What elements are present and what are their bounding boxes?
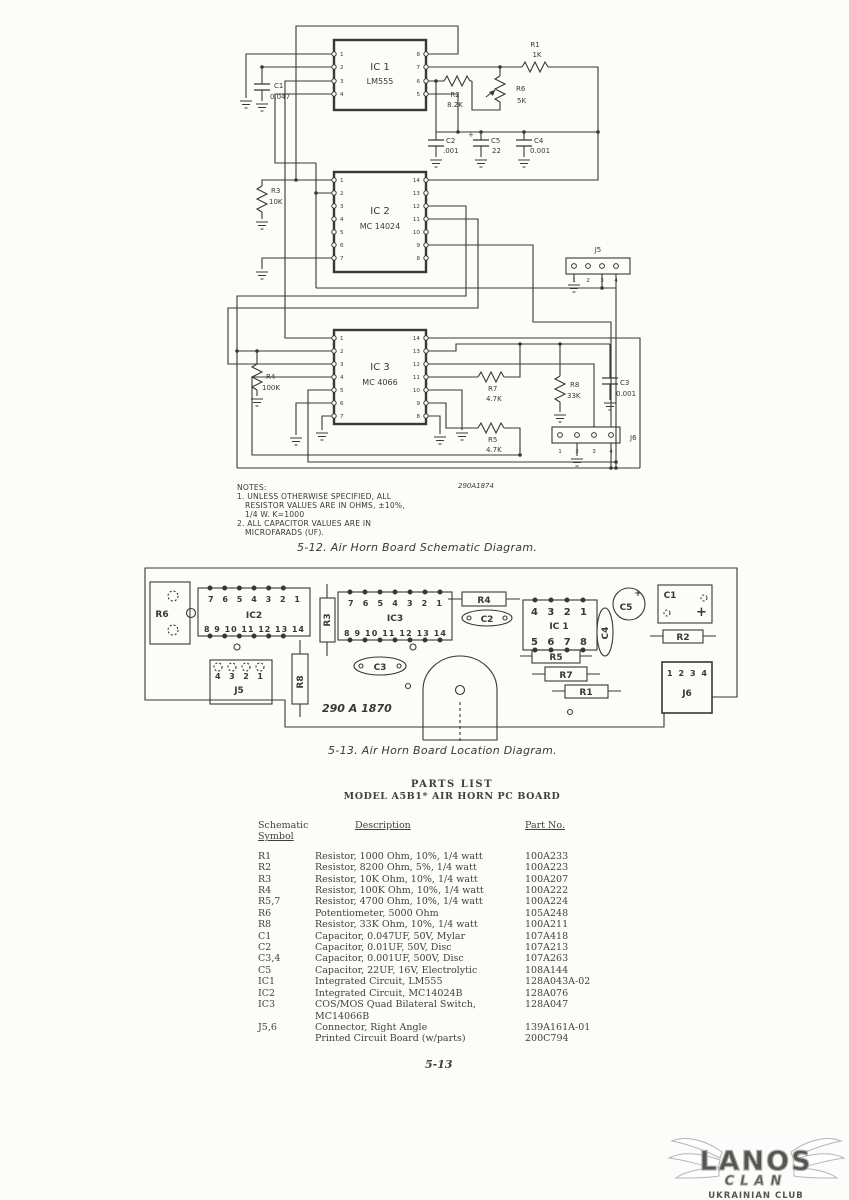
horn-dome xyxy=(423,656,497,744)
r5-value: 4.7K xyxy=(486,446,502,454)
table-row: C3,4Capacitor, 0.001UF, 500V, Disc107A26… xyxy=(258,953,618,964)
board-c2-label: C2 xyxy=(481,615,494,625)
table-row: R8Resistor, 33K Ohm, 10%, 1/4 watt100A21… xyxy=(258,919,618,930)
board-ic3-bottom-pins: 8 9 10 11 12 13 14 xyxy=(344,629,446,638)
header-part-no: Part No. xyxy=(525,820,618,851)
part-no-cell: 128A076 xyxy=(525,988,618,999)
pin-label: 3 xyxy=(340,204,344,210)
board-number: 290 A 1870 xyxy=(322,702,392,715)
board-c3-label: C3 xyxy=(374,663,387,673)
symbol-cell xyxy=(258,1033,315,1044)
c5-label: C5 xyxy=(491,137,500,145)
r1-label: R1 xyxy=(530,41,539,49)
board-c3: C3 xyxy=(354,657,406,675)
pin-label: 4 xyxy=(609,449,613,455)
board-r6-label: R6 xyxy=(155,610,168,620)
c3-value: 0.001 xyxy=(616,390,636,398)
r8-label: R8 xyxy=(570,381,579,389)
symbol-cell: IC3 xyxy=(258,999,315,1022)
r7-value: 4.7K xyxy=(486,395,502,403)
table-row: C5Capacitor, 22UF, 16V, Electrolytic108A… xyxy=(258,965,618,976)
description-cell: Integrated Circuit, MC14024B xyxy=(315,988,525,999)
resistor-r2 xyxy=(444,76,470,86)
symbol-cell: C1 xyxy=(258,931,315,942)
description-cell: Capacitor, 0.047UF, 50V, Mylar xyxy=(315,931,525,942)
part-no-cell: 107A418 xyxy=(525,931,618,942)
description-cell: Connector, Right Angle xyxy=(315,1022,525,1033)
connector-j6: J6 1 2 3 4 xyxy=(552,427,637,455)
table-row: IC1Integrated Circuit, LM555128A043A-02 xyxy=(258,976,618,987)
board-r4: R4 xyxy=(448,592,520,606)
component-labels: R1 1K C1 0.047 R2 8.2K R6 5K C2 .001 + C… xyxy=(262,41,636,490)
board-r5: R5 xyxy=(520,650,592,663)
part-no-cell: 107A213 xyxy=(525,942,618,953)
board-r7: R7 xyxy=(532,667,600,681)
r4-value: 100K xyxy=(262,384,280,392)
pin-label: 10 xyxy=(413,230,421,236)
board-ic1-bottom-pins: 5 6 7 8 xyxy=(531,637,587,648)
pin-label: 6 xyxy=(340,401,344,407)
pin-label: 2 xyxy=(340,191,344,197)
resistor-r5 xyxy=(478,423,504,433)
part-no-cell: 108A144 xyxy=(525,965,618,976)
air-horn-schematic: IC 1 LM555 1 2 3 4 8 7 6 5 IC 2 MC 14024… xyxy=(0,0,849,560)
ic1-part-label: LM555 xyxy=(367,77,394,86)
pin-label: 2 xyxy=(586,278,590,284)
parts-table: Schematic Symbol Description Part No. R1… xyxy=(258,820,618,1045)
board-c2: C2 xyxy=(462,610,512,626)
r6-value: 5K xyxy=(517,97,526,105)
c5-value: 22 xyxy=(492,147,501,155)
board-c1: C1 + xyxy=(658,585,712,623)
description-cell: Resistor, 33K Ohm, 10%, 1/4 watt xyxy=(315,919,525,930)
board-c1-label: C1 xyxy=(664,591,677,601)
board-c5: C5 + xyxy=(613,588,645,620)
board-r2: R2 xyxy=(650,630,716,643)
description-cell: Capacitor, 0.001UF, 500V, Disc xyxy=(315,953,525,964)
part-no-cell: 107A263 xyxy=(525,953,618,964)
pin-label: 8 xyxy=(416,256,420,262)
board-r5-label: R5 xyxy=(549,653,562,663)
symbol-cell: C3,4 xyxy=(258,953,315,964)
pin-label: 1 xyxy=(340,178,344,184)
description-cell: Resistor, 8200 Ohm, 5%, 1/4 watt xyxy=(315,862,525,873)
board-c5-polarity: + xyxy=(634,589,642,599)
board-j6-label: J6 xyxy=(681,689,692,699)
symbol-cell: R8 xyxy=(258,919,315,930)
watermark-subtitle: CLAN xyxy=(725,1174,788,1189)
part-no-cell: 128A043A-02 xyxy=(525,976,618,987)
pin-label: 11 xyxy=(413,217,421,223)
r5-label: R5 xyxy=(488,436,497,444)
pin-label: 4 xyxy=(614,278,618,284)
r3-label: R3 xyxy=(271,187,280,195)
board-r8: R8 xyxy=(292,640,308,717)
board-r1: R1 xyxy=(552,685,621,698)
ic2-symbol: IC 2 MC 14024 1 2 3 4 5 6 7 14 13 12 11 … xyxy=(332,172,428,272)
board-j6: 1 2 3 4 J6 xyxy=(662,662,712,713)
part-no-cell: 200C794 xyxy=(525,1033,618,1044)
note-line: 1. UNLESS OTHERWISE SPECIFIED, ALL xyxy=(237,492,392,501)
table-row: Printed Circuit Board (w/parts)200C794 xyxy=(258,1033,618,1044)
pin-label: 13 xyxy=(413,349,421,355)
pin-label: 4 xyxy=(340,375,344,381)
board-r6: R6 xyxy=(150,582,196,644)
c4-value: 0.001 xyxy=(530,147,550,155)
symbol-cell: J5,6 xyxy=(258,1022,315,1033)
part-no-cell: 100A207 xyxy=(525,874,618,885)
board-j5-pins: 4 3 2 1 xyxy=(215,672,263,681)
resistor-r7 xyxy=(478,372,504,382)
board-ic3-top-pins: 7 6 5 4 3 2 1 xyxy=(348,599,442,608)
description-cell: Resistor, 100K Ohm, 10%, 1/4 watt xyxy=(315,885,525,896)
r4-label: R4 xyxy=(266,373,276,381)
description-cell: Capacitor, 22UF, 16V, Electrolytic xyxy=(315,965,525,976)
symbol-cell: IC2 xyxy=(258,988,315,999)
table-row: C1Capacitor, 0.047UF, 50V, Mylar107A418 xyxy=(258,931,618,942)
part-no-cell: 100A223 xyxy=(525,862,618,873)
board-j5-label: J5 xyxy=(233,686,244,696)
pin-label: 5 xyxy=(340,388,344,394)
pin-label: 3 xyxy=(592,449,596,455)
board-c4-label: C4 xyxy=(601,627,611,640)
pin-label: 8 xyxy=(416,52,420,58)
pin-label: 7 xyxy=(416,65,420,71)
pin-label: 10 xyxy=(413,388,421,394)
r3-value: 10K xyxy=(269,198,283,206)
pin-label: 4 xyxy=(340,92,344,98)
c3-label: C3 xyxy=(620,379,629,387)
table-header: Schematic Symbol Description Part No. xyxy=(258,820,618,851)
table-row: R6Potentiometer, 5000 Ohm105A248 xyxy=(258,908,618,919)
board-ic2-top-pins: 7 6 5 4 3 2 1 xyxy=(208,595,300,604)
symbol-cell: C5 xyxy=(258,965,315,976)
connector-j5: J5 1 2 3 4 xyxy=(566,246,630,284)
table-row: R4Resistor, 100K Ohm, 10%, 1/4 watt100A2… xyxy=(258,885,618,896)
ic1-ref-label: IC 1 xyxy=(370,62,389,73)
board-ic3-label: IC3 xyxy=(387,614,403,624)
board-c1-polarity: + xyxy=(696,605,707,620)
table-row: R1Resistor, 1000 Ohm, 10%, 1/4 watt100A2… xyxy=(258,851,618,862)
r2-label: R2 xyxy=(450,91,459,99)
board-r8-label: R8 xyxy=(296,675,306,688)
r2-value: 8.2K xyxy=(447,101,463,109)
pin-label: 9 xyxy=(416,243,420,249)
j5-ref-label: J5 xyxy=(594,246,602,254)
resistor-r8 xyxy=(555,376,565,402)
table-row: C2Capacitor, 0.01UF, 50V, Disc107A213 xyxy=(258,942,618,953)
parts-list-subtitle: MODEL A5B1* AIR HORN PC BOARD xyxy=(332,791,572,802)
board-ic1: 4 3 2 1 IC 1 5 6 7 8 xyxy=(523,600,597,650)
watermark-tagline: UKRAINIAN CLUB xyxy=(708,1191,803,1200)
r8-value: 33K xyxy=(567,392,581,400)
ic1-symbol: IC 1 LM555 1 2 3 4 8 7 6 5 xyxy=(332,40,428,110)
scanned-manual-page: IC 1 LM555 1 2 3 4 8 7 6 5 IC 2 MC 14024… xyxy=(0,0,849,1200)
pin-label: 13 xyxy=(413,191,421,197)
pin-label: 5 xyxy=(416,92,420,98)
drawing-number: 290A1874 xyxy=(458,482,494,490)
symbol-cell: R4 xyxy=(258,885,315,896)
symbol-cell: R5,7 xyxy=(258,896,315,907)
description-cell: Resistor, 10K Ohm, 10%, 1/4 watt xyxy=(315,874,525,885)
header-description: Description xyxy=(315,820,525,851)
pin-label: 12 xyxy=(413,362,420,368)
c1-value: 0.047 xyxy=(270,93,290,101)
potentiometer-r6 xyxy=(495,76,505,102)
ic3-symbol: IC 3 MC 4066 1 2 3 4 5 6 7 14 13 12 11 1… xyxy=(332,330,428,424)
symbol-cell: C2 xyxy=(258,942,315,953)
board-ic1-top-pins: 4 3 2 1 xyxy=(531,607,587,618)
board-c4: C4 xyxy=(597,608,613,656)
r7-label: R7 xyxy=(488,385,497,393)
table-row: R5,7Resistor, 4700 Ohm, 10%, 1/4 watt100… xyxy=(258,896,618,907)
capacitor-c5 xyxy=(473,140,489,146)
pin-label: 4 xyxy=(340,217,344,223)
r1-value: 1K xyxy=(532,51,541,59)
ic2-part-label: MC 14024 xyxy=(360,222,400,231)
pin-label: 1 xyxy=(572,278,576,284)
part-no-cell: 139A161A-01 xyxy=(525,1022,618,1033)
pin-label: 7 xyxy=(340,256,344,262)
description-cell: Printed Circuit Board (w/parts) xyxy=(315,1033,525,1044)
header-symbol: Schematic Symbol xyxy=(258,820,315,851)
r6-label: R6 xyxy=(516,85,526,93)
board-r1-label: R1 xyxy=(579,688,592,698)
pin-label: 3 xyxy=(600,278,604,284)
pin-label: 6 xyxy=(340,243,344,249)
pin-label: 2 xyxy=(340,65,344,71)
note-line: MICROFARADS (UF). xyxy=(245,528,324,537)
c2-value: .001 xyxy=(443,147,459,155)
notes-title: NOTES: xyxy=(237,483,267,492)
symbol-cell: R6 xyxy=(258,908,315,919)
parts-list-title: PARTS LIST xyxy=(332,779,572,790)
part-no-cell: 105A248 xyxy=(525,908,618,919)
ic3-ref-label: IC 3 xyxy=(370,362,389,373)
board-j5: 4 3 2 1 J5 xyxy=(210,660,272,704)
board-ic1-label: IC 1 xyxy=(549,622,568,632)
pin-label: 2 xyxy=(340,349,344,355)
board-r7-label: R7 xyxy=(559,671,572,681)
c1-label: C1 xyxy=(274,82,283,90)
lanos-clan-watermark: LANOS CLAN UKRAINIAN CLUB xyxy=(664,1128,849,1200)
board-r2-label: R2 xyxy=(676,633,689,643)
pin-label: 1 xyxy=(340,52,344,58)
c2-label: C2 xyxy=(446,137,455,145)
note-line: RESISTOR VALUES ARE IN OHMS, ±10%, xyxy=(245,501,405,510)
pin-label: 8 xyxy=(416,414,420,420)
description-cell: Capacitor, 0.01UF, 50V, Disc xyxy=(315,942,525,953)
description-cell: Resistor, 4700 Ohm, 10%, 1/4 watt xyxy=(315,896,525,907)
symbol-cell: IC1 xyxy=(258,976,315,987)
ic2-ref-label: IC 2 xyxy=(370,206,389,217)
pin-label: 1 xyxy=(558,449,562,455)
board-ic2: 7 6 5 4 3 2 1 IC2 8 9 10 11 12 13 14 xyxy=(198,588,310,636)
pin-label: 1 xyxy=(340,336,344,342)
pin-label: 2 xyxy=(575,449,579,455)
part-no-cell: 128A047 xyxy=(525,999,618,1022)
figure-5-12-caption: 5-12. Air Horn Board Schematic Diagram. xyxy=(297,541,537,554)
description-cell: Resistor, 1000 Ohm, 10%, 1/4 watt xyxy=(315,851,525,862)
pin-label: 14 xyxy=(413,178,421,184)
pin-label: 3 xyxy=(340,362,344,368)
air-horn-board-location: R6 7 6 5 4 3 2 1 IC2 8 9 10 11 12 13 14 … xyxy=(0,562,849,752)
pin-label: 11 xyxy=(413,375,421,381)
description-cell: Potentiometer, 5000 Ohm xyxy=(315,908,525,919)
figure-5-13-caption: 5-13. Air Horn Board Location Diagram. xyxy=(328,744,557,757)
symbol-cell: R3 xyxy=(258,874,315,885)
page-number: 5-13 xyxy=(425,1058,453,1071)
part-no-cell: 100A211 xyxy=(525,919,618,930)
board-r3-label: R3 xyxy=(323,613,333,626)
c4-label: C4 xyxy=(534,137,544,145)
capacitor-c2 xyxy=(428,140,444,146)
board-c5-label: C5 xyxy=(620,603,633,613)
board-ic2-bottom-pins: 8 9 10 11 12 13 14 xyxy=(204,625,304,634)
pin-label: 6 xyxy=(416,79,420,85)
pin-label: 9 xyxy=(416,401,420,407)
symbol-cell: R1 xyxy=(258,851,315,862)
watermark-title: LANOS xyxy=(699,1146,812,1177)
description-cell: COS/MOS Quad Bilateral Switch, MC14066B xyxy=(315,999,525,1022)
pin-label: 5 xyxy=(340,230,344,236)
c5-polarity: + xyxy=(468,131,474,139)
board-r4-label: R4 xyxy=(477,596,490,606)
table-row: J5,6Connector, Right Angle139A161A-01 xyxy=(258,1022,618,1033)
description-cell: Integrated Circuit, LM555 xyxy=(315,976,525,987)
pin-label: 12 xyxy=(413,204,420,210)
table-row: R3Resistor, 10K Ohm, 10%, 1/4 watt100A20… xyxy=(258,874,618,885)
table-row: IC3COS/MOS Quad Bilateral Switch, MC1406… xyxy=(258,999,618,1022)
symbol-cell: R2 xyxy=(258,862,315,873)
board-ic2-label: IC2 xyxy=(246,611,262,621)
board-r3: R3 xyxy=(320,584,335,656)
ic3-part-label: MC 4066 xyxy=(362,378,397,387)
resistor-r3 xyxy=(257,186,267,212)
capacitor-c1 xyxy=(254,84,270,90)
pot-wiper-arrow xyxy=(489,90,495,96)
table-row: IC2Integrated Circuit, MC14024B128A076 xyxy=(258,988,618,999)
parts-list-heading: PARTS LIST MODEL A5B1* AIR HORN PC BOARD xyxy=(332,779,572,802)
pin-label: 7 xyxy=(340,414,344,420)
part-no-cell: 100A233 xyxy=(525,851,618,862)
board-ic3: 7 6 5 4 3 2 1 IC3 8 9 10 11 12 13 14 xyxy=(338,592,452,640)
note-line: 1/4 W. K=1000 xyxy=(245,510,304,519)
schematic-notes: NOTES: 1. UNLESS OTHERWISE SPECIFIED, AL… xyxy=(237,483,405,537)
resistor-r1 xyxy=(522,62,548,72)
note-line: 2. ALL CAPACITOR VALUES ARE IN xyxy=(237,519,371,528)
part-no-cell: 100A222 xyxy=(525,885,618,896)
pin-label: 14 xyxy=(413,336,421,342)
pin-label: 3 xyxy=(340,79,344,85)
part-no-cell: 100A224 xyxy=(525,896,618,907)
j6-ref-label: J6 xyxy=(629,434,637,442)
table-row: R2Resistor, 8200 Ohm, 5%, 1/4 watt100A22… xyxy=(258,862,618,873)
capacitor-c4 xyxy=(516,140,532,146)
